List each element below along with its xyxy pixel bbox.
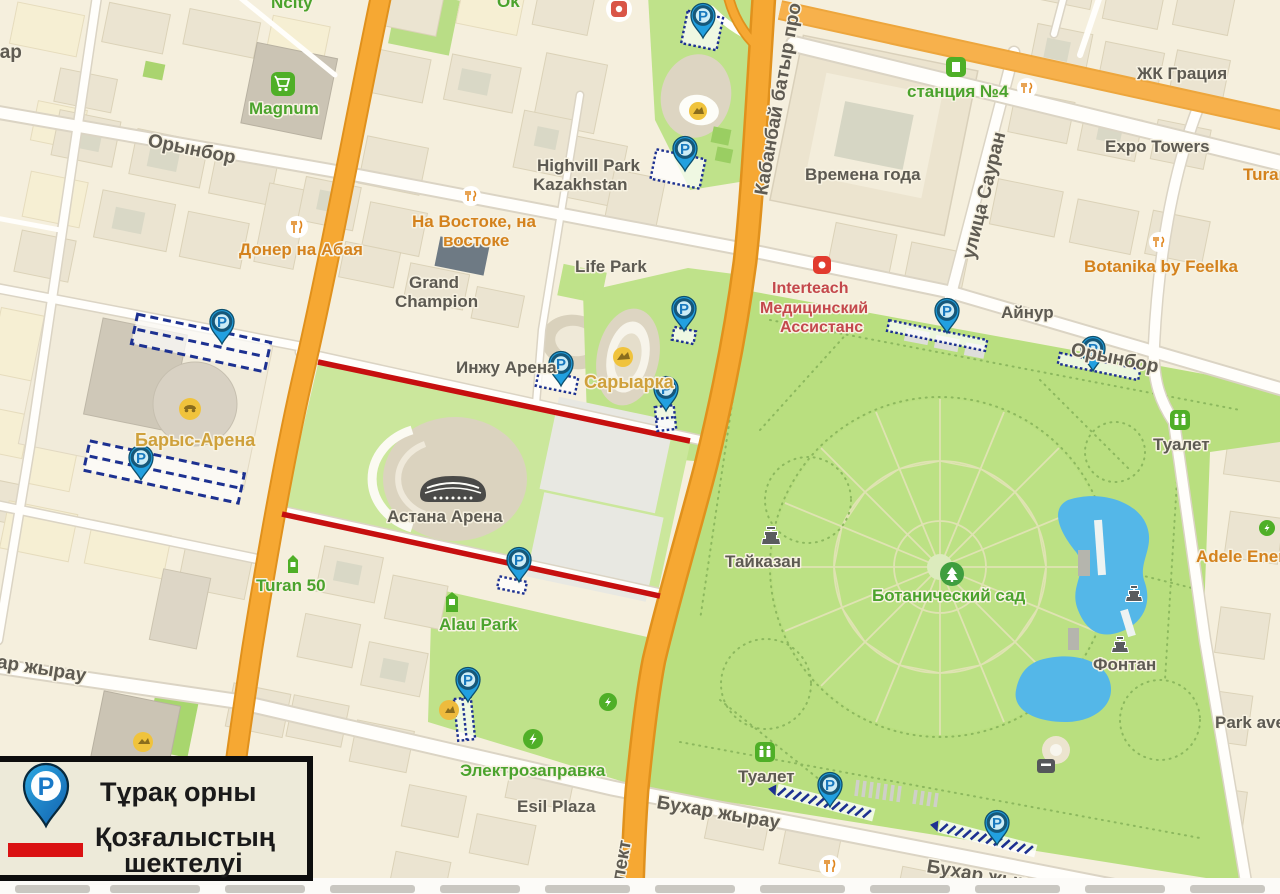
svg-text:востоке: востоке xyxy=(443,231,509,250)
svg-text:станция №4: станция №4 xyxy=(907,82,1009,101)
svg-text:На Востоке, на: На Востоке, на xyxy=(412,212,537,231)
svg-text:Expo Towers: Expo Towers xyxy=(1105,137,1210,156)
svg-text:Туалет: Туалет xyxy=(1153,435,1210,454)
svg-text:Ncity: Ncity xyxy=(271,0,313,12)
svg-text:Барыс-Арена: Барыс-Арена xyxy=(135,430,256,450)
svg-text:Esil Plaza: Esil Plaza xyxy=(517,797,596,816)
svg-text:Ботанический сад: Ботанический сад xyxy=(872,586,1025,605)
svg-text:Астана Арена: Астана Арена xyxy=(387,507,503,526)
svg-text:жар: жар xyxy=(0,42,22,63)
svg-text:шектелуі: шектелуі xyxy=(124,848,243,878)
svg-text:Айнур: Айнур xyxy=(1001,303,1054,322)
svg-text:Alau Park: Alau Park xyxy=(439,615,518,634)
svg-text:Botanika by Feelka: Botanika by Feelka xyxy=(1084,257,1239,276)
svg-text:Magnum: Magnum xyxy=(249,99,319,118)
svg-text:Тайказан: Тайказан xyxy=(725,552,801,571)
svg-text:Life Park: Life Park xyxy=(575,257,647,276)
svg-text:Сарыарка: Сарыарка xyxy=(584,372,675,392)
svg-text:Тұрақ орны: Тұрақ орны xyxy=(100,777,256,807)
svg-text:Kazakhstan: Kazakhstan xyxy=(533,175,627,194)
svg-text:ЖК Грация: ЖК Грация xyxy=(1136,64,1227,83)
svg-text:Highvill Park: Highvill Park xyxy=(537,156,641,175)
svg-text:Фонтан: Фонтан xyxy=(1093,655,1156,674)
svg-text:Туалет: Туалет xyxy=(738,767,795,786)
svg-text:Interteach: Interteach xyxy=(772,280,848,297)
svg-text:Донер на Абая: Донер на Абая xyxy=(239,240,363,259)
svg-text:Ассистанс: Ассистанс xyxy=(780,319,863,336)
svg-text:Медицинский: Медицинский xyxy=(760,300,868,317)
svg-text:P: P xyxy=(38,773,55,801)
svg-text:Инжу Арена: Инжу Арена xyxy=(456,358,557,377)
svg-text:Turan 50: Turan 50 xyxy=(256,576,326,595)
svg-text:Электрозаправка: Электрозаправка xyxy=(460,761,606,780)
svg-text:Park ave: Park ave xyxy=(1215,713,1280,732)
svg-text:Adele Ener: Adele Ener xyxy=(1196,547,1280,566)
svg-text:Champion: Champion xyxy=(395,292,478,311)
svg-text:Времена года: Времена года xyxy=(805,165,921,184)
svg-text:Grand: Grand xyxy=(409,273,459,292)
svg-text:Ok: Ok xyxy=(497,0,520,11)
svg-text:Turan: Turan xyxy=(1243,165,1280,184)
